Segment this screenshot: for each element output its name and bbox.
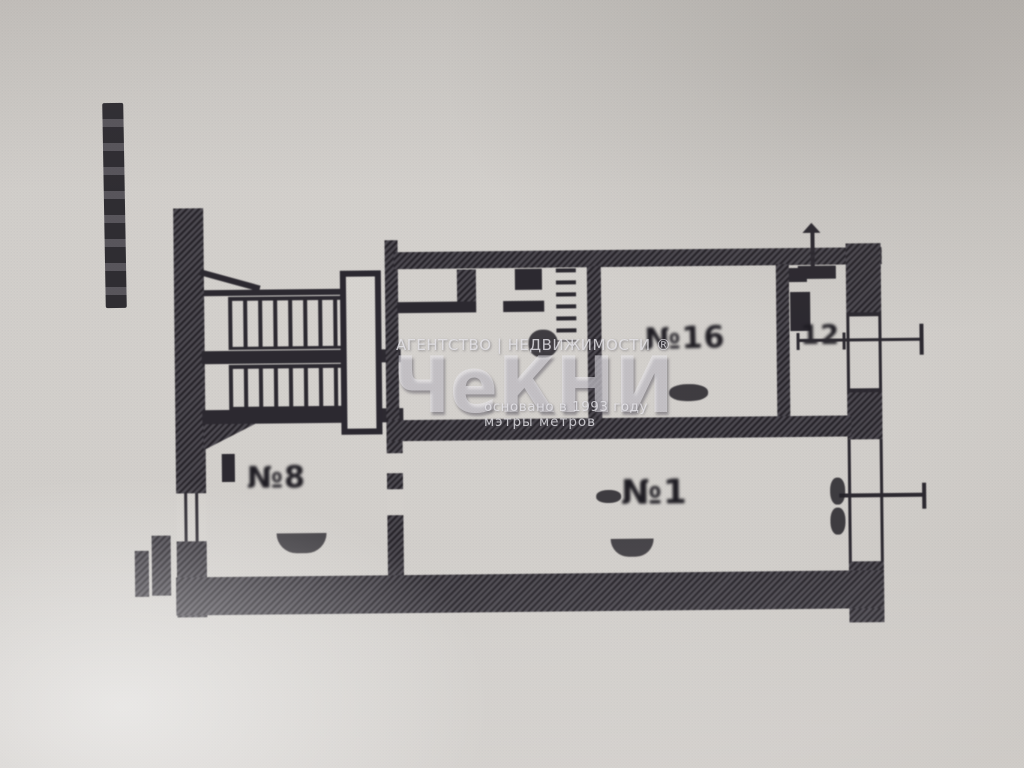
window-frame-line [184,493,188,541]
vent-block [798,266,836,279]
label-tick [222,454,235,482]
radiator-mark [830,508,845,535]
vent-arrow-line [810,229,814,267]
service-stair-hatch [556,268,577,341]
partition-horizontal [503,301,544,312]
stair-landing [340,270,383,434]
window-frame-line [846,314,850,390]
watermark-founded-line: основано в 1993 году [484,399,648,415]
door-gap [387,489,403,515]
porch-step [152,536,172,596]
stair-corner-hatch [203,424,255,451]
door-gap [387,453,403,473]
room-area-smudge [277,533,327,554]
flue-block [515,269,542,290]
label-dash [596,490,621,503]
wall-room16-right [776,264,791,426]
wall-right-segment [847,392,882,439]
window-mid-line [839,493,925,498]
window-frame-line [846,312,881,316]
window-line-endbar [922,483,926,509]
wall-right-segment [846,243,882,314]
window-left [176,493,207,541]
watermark-tagline: мэтры метров [484,414,596,430]
room-label: №1 [621,472,688,513]
stair-flight-lower [229,364,346,410]
vent-arrow-head [802,223,820,233]
window-frame-line [878,314,882,390]
section-line [800,338,922,342]
porch-step [135,551,149,597]
radiator-mark [830,478,845,505]
scanned-floor-plan-photo: №16 12 [0,0,1024,768]
window-frame-line [195,493,199,541]
stair-flight-upper [228,296,346,350]
room-area-smudge [669,384,708,401]
room-label: №8 [247,460,306,496]
stair-cut-diagonal [199,269,260,291]
section-line-endbar [919,324,923,355]
window-frame-line [848,439,852,561]
room-area-smudge [611,539,654,557]
window-frame-line [880,439,884,561]
partition-horizontal [397,301,476,313]
room-label: 12 [800,320,840,351]
wall-bottom [176,570,884,615]
